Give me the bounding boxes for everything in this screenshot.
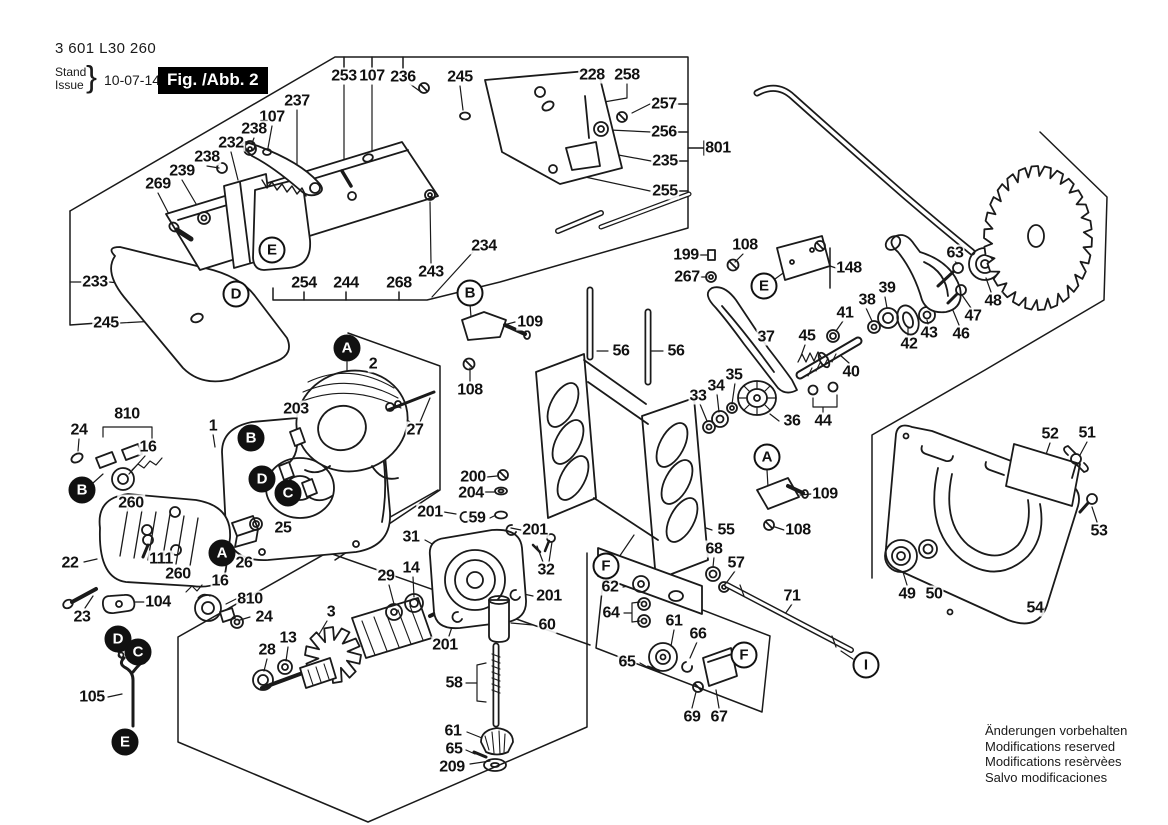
part-label-253: 253: [330, 68, 358, 85]
saw-blade-icon: [984, 166, 1092, 310]
part-label-49: 49: [898, 586, 917, 603]
part-label-42: 42: [900, 336, 919, 353]
callout-a: A: [334, 335, 361, 362]
part-label-236: 236: [389, 69, 417, 86]
part-label-109: 109: [516, 314, 544, 331]
part-label-47: 47: [964, 308, 983, 325]
part-label-109: 109: [811, 486, 839, 503]
part-label-71: 71: [783, 588, 802, 605]
part-label-61: 61: [665, 613, 684, 630]
part-label-65: 65: [618, 654, 637, 671]
part-label-256: 256: [650, 124, 678, 141]
part-label-41: 41: [836, 305, 855, 322]
part-label-107: 107: [358, 68, 386, 85]
part-label-24: 24: [70, 422, 89, 439]
callout-c: C: [275, 480, 302, 507]
part-label-25: 25: [274, 520, 293, 537]
callout-d: D: [223, 281, 250, 308]
part-label-50: 50: [925, 586, 944, 603]
diagram-line-art: [0, 0, 1168, 825]
cover-plate-235: [485, 70, 622, 184]
part-label-148: 148: [835, 260, 863, 277]
part-label-44: 44: [814, 413, 833, 430]
part-label-35: 35: [725, 367, 744, 384]
part-label-254: 254: [290, 275, 318, 292]
part-label-268: 268: [385, 275, 413, 292]
circlip-66: [682, 662, 692, 672]
part-label-108: 108: [784, 522, 812, 539]
brush-16: [112, 468, 134, 490]
issue-stand-label: Stand Issue: [55, 66, 86, 92]
part-label-243: 243: [417, 264, 445, 281]
part-label-244: 244: [332, 275, 360, 292]
part-label-810: 810: [113, 406, 141, 423]
callout-e: E: [259, 237, 286, 264]
exploded-parts-diagram: 3 601 L30 260 Stand Issue } 10-07-14 Fig…: [0, 0, 1168, 825]
part-label-267: 267: [673, 269, 701, 286]
bracket-109: [462, 312, 506, 340]
part-label-2: 2: [368, 356, 379, 373]
part-label-24: 24: [255, 609, 274, 626]
part-label-31: 31: [402, 529, 421, 546]
part-label-108: 108: [731, 237, 759, 254]
frame-55: [536, 354, 708, 614]
part-label-33: 33: [689, 388, 708, 405]
callout-e: E: [751, 273, 778, 300]
notice-line: Modifications reserved: [985, 739, 1127, 755]
part-label-61: 61: [444, 723, 463, 740]
cable-clamp-104: [103, 595, 135, 613]
bolt-23: [72, 589, 96, 602]
part-label-258: 258: [613, 67, 641, 84]
part-label-201: 201: [416, 504, 444, 521]
part-label-51: 51: [1078, 425, 1097, 442]
part-label-60: 60: [538, 617, 557, 634]
part-label-269: 269: [144, 176, 172, 193]
part-label-13: 13: [279, 630, 298, 647]
part-label-66: 66: [689, 626, 708, 643]
callout-b: B: [238, 425, 265, 452]
part-label-233: 233: [81, 274, 109, 291]
part-label-237: 237: [283, 93, 311, 110]
part-label-257: 257: [650, 96, 678, 113]
notice-line: Salvo modificaciones: [985, 770, 1127, 786]
figure-caption: Fig. /Abb. 2: [158, 67, 268, 94]
part-label-26: 26: [235, 555, 254, 572]
part-label-238: 238: [193, 149, 221, 166]
part-label-46: 46: [952, 326, 971, 343]
part-label-201: 201: [431, 637, 459, 654]
part-label-28: 28: [258, 642, 277, 659]
part-label-55: 55: [717, 522, 736, 539]
part-label-63: 63: [946, 245, 965, 262]
part-label-201: 201: [521, 522, 549, 539]
modification-notices: Änderungen vorbehalten Modifications res…: [985, 723, 1127, 785]
part-label-36: 36: [783, 413, 802, 430]
part-label-16: 16: [139, 439, 158, 456]
part-label-204: 204: [457, 485, 485, 502]
callout-e: E: [112, 729, 139, 756]
bearing-tube-60: [489, 600, 509, 642]
part-label-209: 209: [438, 759, 466, 776]
callout-c: C: [125, 639, 152, 666]
part-label-68: 68: [705, 541, 724, 558]
part-label-239: 239: [168, 163, 196, 180]
document-number: 3 601 L30 260: [55, 40, 156, 57]
callout-f: F: [593, 553, 620, 580]
pin-199: [708, 250, 715, 260]
callout-a: A: [209, 540, 236, 567]
callout-b: B: [69, 477, 96, 504]
part-label-235: 235: [651, 153, 679, 170]
bracket-148: [777, 236, 830, 280]
part-label-23: 23: [73, 609, 92, 626]
notice-line: Änderungen vorbehalten: [985, 723, 1127, 739]
part-label-14: 14: [402, 560, 421, 577]
part-label-3: 3: [326, 604, 337, 621]
issue-brace: }: [86, 60, 97, 95]
part-label-105: 105: [78, 689, 106, 706]
part-label-32: 32: [537, 562, 556, 579]
callout-i: I: [853, 652, 880, 679]
part-label-104: 104: [144, 594, 172, 611]
part-label-199: 199: [672, 247, 700, 264]
callout-b: B: [457, 280, 484, 307]
part-label-57: 57: [727, 555, 746, 572]
part-label-54: 54: [1026, 600, 1045, 617]
part-label-40: 40: [842, 364, 861, 381]
part-label-39: 39: [878, 280, 897, 297]
part-label-62: 62: [601, 579, 620, 596]
brush-16b: [195, 595, 221, 621]
part-label-67: 67: [710, 709, 729, 726]
part-label-228: 228: [578, 67, 606, 84]
issue-date: 10-07-14: [104, 72, 160, 88]
part-label-59: 59: [468, 510, 487, 527]
part-label-245: 245: [446, 69, 474, 86]
notice-line: Modifications resèrvèes: [985, 754, 1127, 770]
part-label-53: 53: [1090, 523, 1109, 540]
part-label-69: 69: [683, 709, 702, 726]
callout-d: D: [249, 466, 276, 493]
bevel-gear-61: [481, 728, 513, 755]
part-label-48: 48: [984, 293, 1003, 310]
callout-f: F: [731, 642, 758, 669]
part-label-64: 64: [602, 605, 621, 622]
part-label-37: 37: [757, 329, 776, 346]
pulley-61: [649, 643, 677, 671]
part-label-45: 45: [798, 328, 817, 345]
part-label-232: 232: [217, 135, 245, 152]
part-label-1: 1: [208, 418, 219, 435]
part-label-201: 201: [535, 588, 563, 605]
part-label-58: 58: [445, 675, 464, 692]
part-label-16: 16: [211, 573, 230, 590]
part-label-56: 56: [667, 343, 686, 360]
part-label-22: 22: [61, 555, 80, 572]
part-label-65: 65: [445, 741, 464, 758]
part-label-34: 34: [707, 378, 726, 395]
part-label-38: 38: [858, 292, 877, 309]
part-label-810: 810: [236, 591, 264, 608]
callout-a: A: [754, 444, 781, 471]
part-label-52: 52: [1041, 426, 1060, 443]
part-label-255: 255: [651, 183, 679, 200]
part-label-234: 234: [470, 238, 498, 255]
part-label-245: 245: [92, 315, 120, 332]
part-label-43: 43: [920, 325, 939, 342]
part-label-801: 801: [704, 140, 732, 157]
wire-105: [121, 658, 140, 726]
part-label-27: 27: [406, 422, 425, 439]
part-label-200: 200: [459, 469, 487, 486]
part-label-29: 29: [377, 568, 396, 585]
part-label-260: 260: [117, 495, 145, 512]
part-label-56: 56: [612, 343, 631, 360]
part-label-203: 203: [282, 401, 310, 418]
part-label-260: 260: [164, 566, 192, 583]
part-label-108: 108: [456, 382, 484, 399]
